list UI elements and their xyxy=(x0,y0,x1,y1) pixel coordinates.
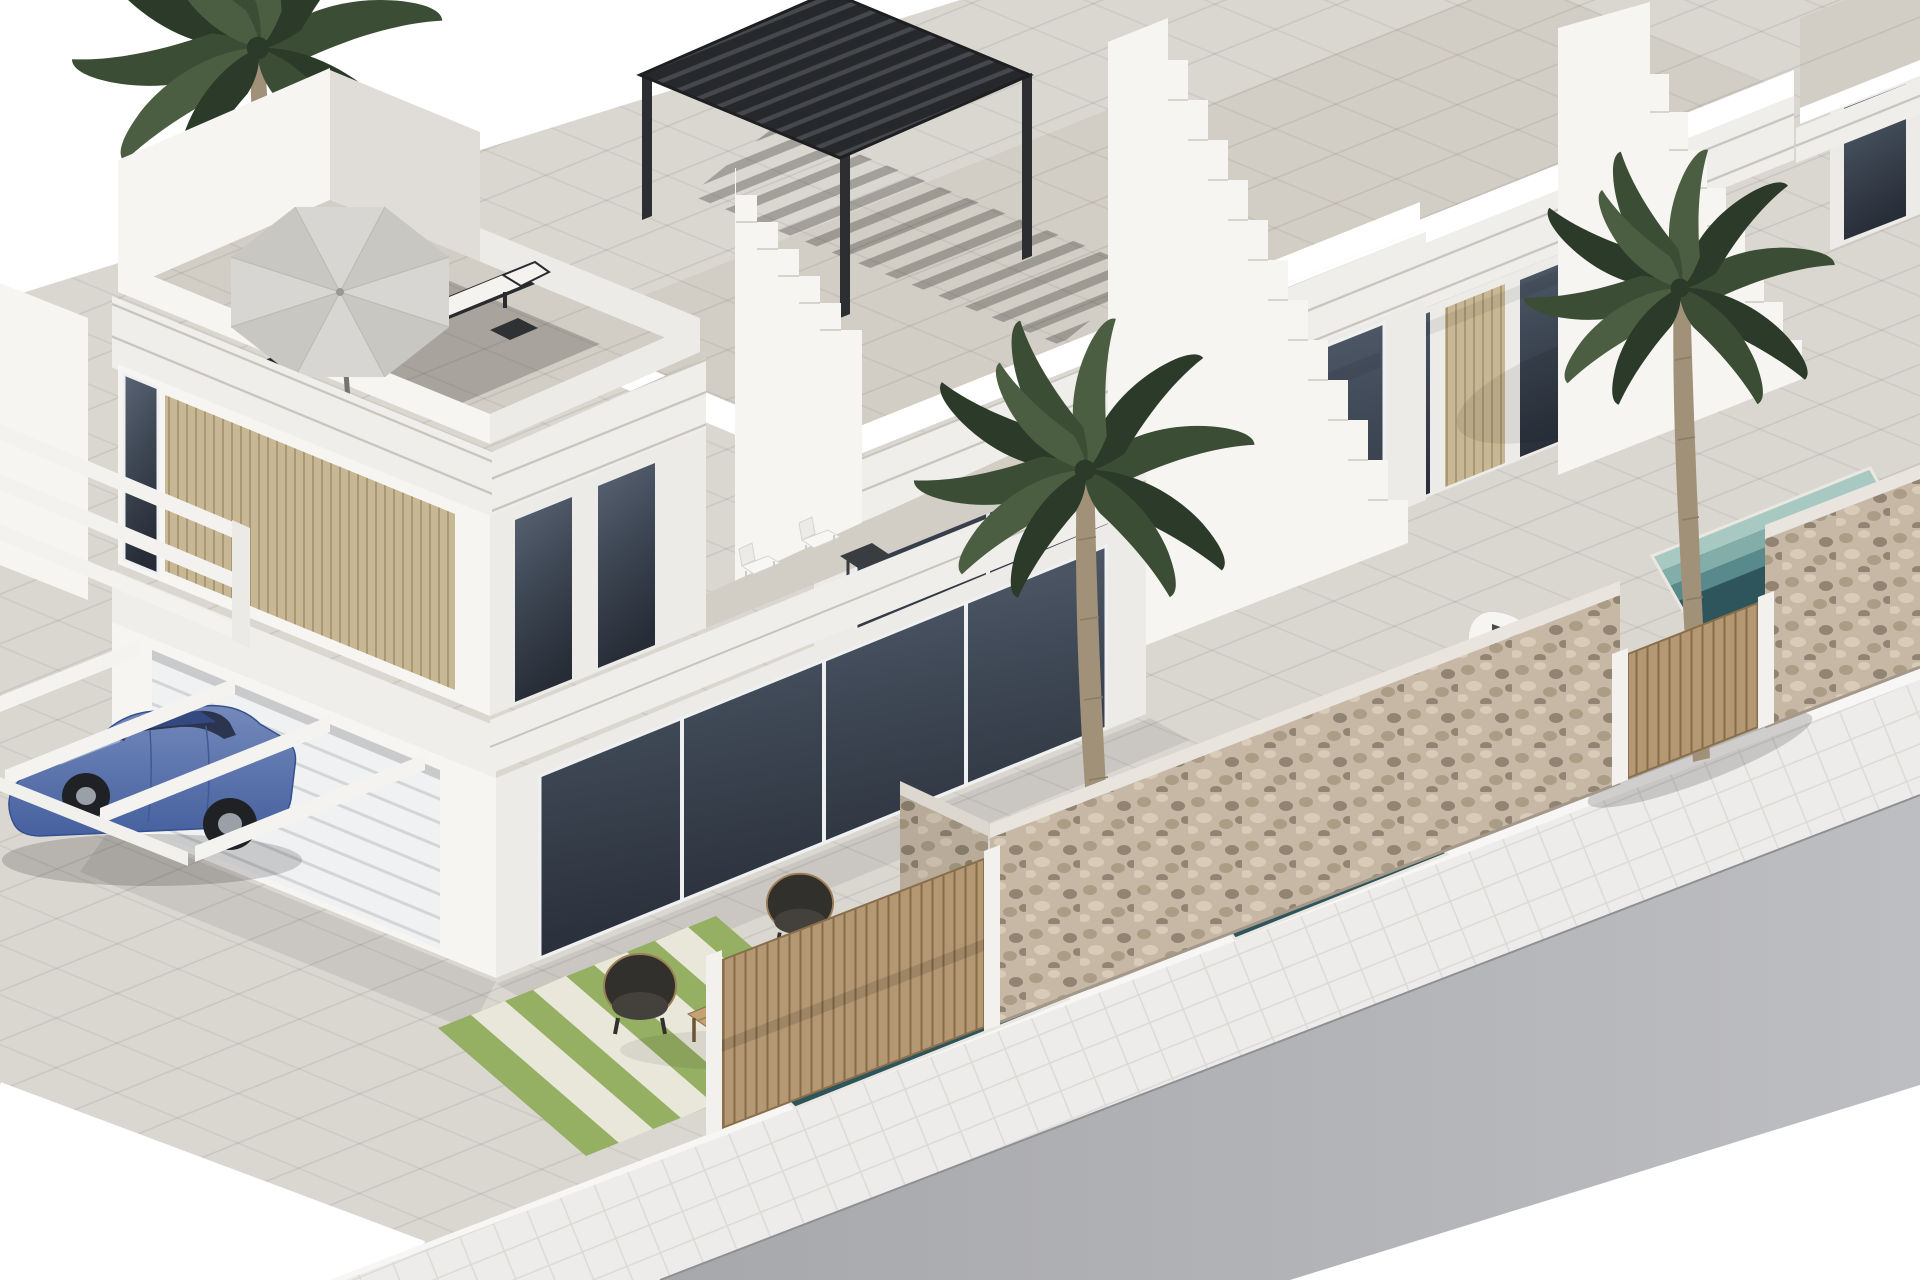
railing-post xyxy=(232,520,250,648)
upper-window xyxy=(515,497,572,702)
upper-window xyxy=(598,463,655,668)
architectural-render: Isometric 3D architectural rendering of … xyxy=(0,0,1920,1280)
render-canvas: Isometric 3D architectural rendering of … xyxy=(0,0,1920,1280)
